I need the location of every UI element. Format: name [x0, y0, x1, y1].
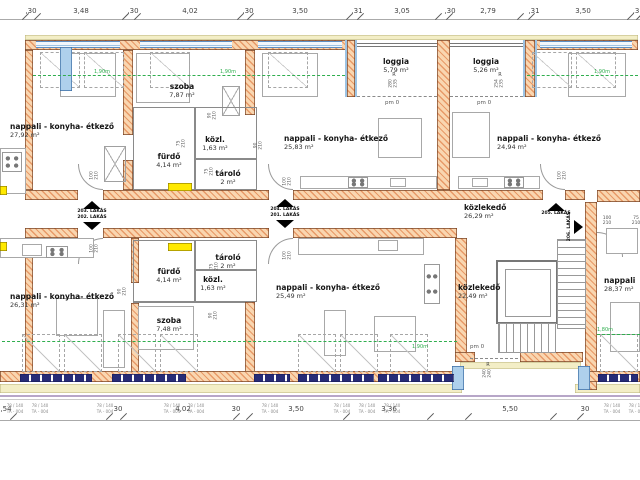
room-label: közl.1,63 m² — [191, 276, 235, 292]
apartment-door-label: 206. LAKÁS — [567, 212, 583, 241]
green-dim-label: 1,90m — [220, 69, 236, 75]
green-dim-label: 1,90m — [94, 69, 110, 75]
wall-loggia-left — [345, 40, 357, 97]
room-label: közl.1,63 m² — [193, 136, 237, 152]
dim-label: ,30 — [127, 7, 138, 15]
wall-left-upper — [25, 50, 33, 190]
door-arrow-icon — [276, 220, 294, 228]
room-label: nappali - konyha- étkező25,83 m² — [284, 135, 404, 151]
room-label: közlekedő22,49 m² — [458, 284, 522, 300]
text: 210 — [288, 248, 293, 262]
dim-tick — [246, 413, 253, 420]
dim-label: 4,02 — [182, 7, 198, 15]
window-size-numbers: 280235 — [389, 77, 400, 89]
text: 210 — [123, 284, 128, 298]
dim-label: 3,48 — [73, 7, 89, 15]
wall-divider-de — [245, 302, 255, 372]
window-bottom-3 — [254, 374, 290, 382]
room-label: nappali - konyha- étkező27,92 m² — [10, 123, 130, 139]
door-size-label: 90210 — [208, 108, 219, 122]
room-area: 27,92 m² — [10, 132, 130, 139]
aptxt: 202. LAKÁS — [70, 215, 114, 221]
floor-plan: nappali - konyha- étkező27,92 m²szoba7,8… — [0, 0, 640, 480]
dim-label: 5,50 — [502, 405, 518, 413]
window-swing-symbol — [390, 334, 428, 372]
dim-label: 2,79 — [480, 7, 496, 15]
window-top-2 — [140, 41, 232, 48]
aptxt vert: 206. LAKÁS — [567, 212, 573, 241]
aptxt: 201. LAKÁS — [263, 213, 307, 219]
text: 210 — [214, 308, 219, 322]
room-label: nappali - konyha- étkező26,31 m² — [10, 293, 130, 309]
dim-tick — [577, 413, 584, 420]
room-label: nappali - konyha- étkező24,94 m² — [497, 135, 622, 151]
dim-label: 3,50 — [292, 7, 308, 15]
wall-divider-b — [245, 50, 255, 115]
window-tag: 78 / 140TA - 004 — [97, 403, 114, 415]
text: TA - 004 — [384, 409, 401, 415]
window-tag: 78 / 140TA - 004 — [7, 403, 24, 415]
furniture-table — [606, 228, 638, 254]
sink-icon — [22, 244, 42, 256]
stove-icon — [504, 177, 524, 188]
text: TA - 004 — [262, 409, 279, 415]
sink-icon — [378, 240, 398, 251]
window-tag: 78 / 140TA - 004 — [188, 403, 205, 415]
text: TA - 004 — [604, 409, 621, 415]
room-label: szoba7,48 m² — [143, 317, 195, 333]
wall-entry-2 — [520, 352, 583, 362]
green-dim-label: 1,80m — [597, 327, 613, 333]
wall-corridor-top-4 — [565, 190, 585, 200]
dim-tick — [550, 413, 557, 420]
dim-label: 3,50 — [575, 7, 591, 15]
furniture-kitchen-counter — [298, 238, 424, 255]
window-size-label: R254235 — [494, 72, 506, 89]
dim-tick — [120, 413, 127, 420]
wall-entry-1 — [455, 352, 475, 362]
wall-corridor-top-1 — [25, 190, 78, 200]
wall-divider-bc — [437, 40, 450, 190]
stove-icon — [46, 246, 68, 258]
dim-tick — [233, 413, 240, 420]
room-label: szoba7,87 m² — [154, 83, 210, 99]
sink-icon — [472, 178, 488, 187]
door-arrow-icon — [547, 203, 565, 211]
door-size-label: 75210 — [177, 136, 188, 150]
door-size-label: 90210 — [254, 138, 265, 152]
room-area: 25,49 m² — [276, 293, 396, 300]
wall-stairhall-right — [585, 202, 597, 390]
room-area: 26,29 m² — [464, 213, 534, 220]
door-arrow-icon — [574, 220, 583, 234]
window-bottom-1 — [20, 374, 92, 382]
floor-level-label: pm 0 — [477, 100, 491, 106]
door-size-label: 100210 — [283, 174, 294, 188]
window-swing-symbol — [532, 52, 572, 88]
window-bottom-4 — [298, 374, 374, 382]
room-label: fürdő4,14 m² — [146, 153, 192, 169]
dim-label: 3,05 — [394, 7, 410, 15]
room-label: nappali - konyha- étkező25,49 m² — [276, 284, 396, 300]
facade-line — [0, 395, 640, 397]
stove-icon — [2, 152, 22, 172]
room-area: 22,49 m² — [458, 293, 522, 300]
text: TA - 004 — [334, 409, 351, 415]
room-area: 24,94 m² — [497, 144, 622, 151]
door-size-label: 100210 — [600, 216, 614, 227]
stove-icon — [348, 177, 368, 188]
dim-label: 30 — [581, 405, 590, 413]
room-area: 1,63 m² — [193, 145, 237, 152]
door-size-label: 100210 — [90, 168, 101, 182]
door-arrow-icon — [83, 222, 101, 230]
room-area: 4,14 m² — [146, 162, 192, 169]
room-area: 26,31 m² — [10, 302, 130, 309]
text: 210 — [210, 164, 215, 178]
stair-flight-horizontal — [498, 323, 556, 353]
apartment-door-label: 204. LAKÁS201. LAKÁS — [263, 199, 307, 228]
window-swing-symbol — [298, 334, 336, 372]
entry-threshold-line — [470, 358, 518, 359]
window-tag: 78 / 140TA - 004 — [384, 403, 401, 415]
window-tag: 78 / 140TA - 004 — [32, 403, 49, 415]
wall-right-block — [597, 190, 640, 202]
window-tag: 78 / 140TA - 004 — [262, 403, 279, 415]
window-size-numbers: 254235 — [495, 77, 506, 89]
dim-label: 30 — [114, 405, 123, 413]
text: 240 — [488, 367, 493, 379]
window-bottom-5 — [378, 374, 454, 382]
window-top-1 — [36, 41, 120, 48]
door-arrow-icon — [276, 199, 294, 207]
window-size-numbers: 240240 — [483, 367, 494, 379]
wall-corridor-top-2 — [103, 190, 269, 200]
threshold-left-bottom — [0, 242, 7, 251]
room-label: fürdő4,14 m² — [146, 268, 192, 284]
door-size-label: 75210 — [205, 164, 216, 178]
door-size-label: 100210 — [283, 248, 294, 262]
floor-level-label: pm 0 — [385, 100, 399, 106]
room-area: 25,83 m² — [284, 144, 404, 151]
window-tag: 78 / 140TA - 004 — [604, 403, 621, 415]
entry-facade-band — [460, 362, 581, 369]
dim-label: 3,50 — [288, 405, 304, 413]
wall-corridor-top-3 — [293, 190, 543, 200]
window-top-3 — [258, 41, 342, 48]
room-area: 4,14 m² — [146, 277, 192, 284]
text: 210 — [95, 241, 100, 255]
window-swing-symbol — [118, 334, 156, 372]
text: 210 — [259, 138, 264, 152]
wall-corridor-bottom-3 — [293, 228, 457, 238]
room-area: 1,63 m² — [191, 285, 235, 292]
window-tag: 78 / 140TA - 004 — [334, 403, 351, 415]
text: 210 — [288, 174, 293, 188]
furniture-dining-table — [452, 112, 490, 158]
text: TA - 004 — [7, 409, 24, 415]
text: 210 — [95, 168, 100, 182]
text: 210 — [182, 136, 187, 150]
wall-corridor-bottom-2 — [103, 228, 269, 238]
room-label: nappali28,37 m² — [604, 277, 640, 293]
text: 210 — [213, 108, 218, 122]
green-dim-label: 1,90m — [412, 344, 428, 350]
door-size-label: 75210 — [210, 259, 221, 273]
sink-icon — [390, 178, 406, 187]
loggia-floor-edge-1 — [357, 96, 437, 97]
door-size-label: 100210 — [90, 241, 101, 255]
text: TA - 004 — [188, 409, 205, 415]
text: 210 — [215, 259, 220, 273]
green-section-line — [33, 75, 345, 76]
window-size-label: R280235 — [388, 72, 400, 89]
window-bottom-6 — [598, 374, 638, 382]
text: 235 — [394, 77, 399, 89]
text: 235 — [500, 77, 505, 89]
door-size-label: 90210 — [118, 284, 129, 298]
loggia-floor-edge-2 — [450, 96, 523, 97]
window-top-4 — [540, 41, 632, 48]
text: 210 — [600, 221, 614, 226]
room-area: 2 m² — [206, 179, 250, 186]
room-label: közlekedő26,29 m² — [464, 204, 534, 220]
stove-icon — [424, 264, 440, 304]
dim-tick — [427, 413, 434, 420]
door-size-label: 90210 — [209, 308, 220, 322]
window-swing-symbol — [64, 334, 102, 372]
apartment-door-label: 203. LAKÁS202. LAKÁS — [70, 201, 114, 230]
bottom-facade-band-left — [0, 384, 462, 393]
stair-flight-vertical — [557, 239, 586, 329]
text: 210 — [629, 221, 640, 226]
floor-level-label: pm 0 — [470, 344, 484, 350]
window-bottom-2 — [112, 374, 186, 382]
text: TA - 004 — [97, 409, 114, 415]
text: TA - 004 — [32, 409, 49, 415]
text: 210 — [563, 168, 568, 182]
green-section-line — [2, 341, 457, 342]
room-area: 28,37 m² — [604, 286, 640, 293]
furniture-kitchen-counter — [300, 176, 437, 189]
window-swing-symbol — [22, 334, 60, 372]
door-size-label: 100210 — [558, 168, 569, 182]
text: TA - 004 — [629, 409, 640, 415]
partition-bedroom-bottom — [133, 301, 245, 303]
window-swing-symbol — [268, 52, 308, 88]
threshold-top — [168, 183, 192, 191]
window-swing-symbol — [340, 334, 378, 372]
window-bay-left — [60, 47, 72, 91]
room-area: 7,87 m² — [154, 92, 210, 99]
bottom-dimension-line — [0, 420, 640, 421]
text: TA - 004 — [164, 409, 181, 415]
facade-line-2 — [0, 399, 640, 400]
window-size-label: R240240 — [482, 362, 494, 379]
window-swing-symbol — [160, 334, 198, 372]
green-section-line — [527, 75, 638, 76]
window-tag: 78 / 140TA - 004 — [629, 403, 640, 415]
green-dim-label: 1,90m — [594, 69, 610, 75]
room-area: 7,48 m² — [143, 326, 195, 333]
text: TA - 004 — [359, 409, 376, 415]
threshold-bottom — [168, 243, 192, 251]
green-section-line — [597, 334, 640, 335]
furniture-kitchen-counter — [458, 176, 540, 189]
dim-tick — [465, 413, 472, 420]
window-tag: 78 / 140TA - 004 — [359, 403, 376, 415]
threshold-left-top — [0, 186, 7, 195]
window-tag: 78 / 140TA - 004 — [164, 403, 181, 415]
entry-corner-right — [578, 366, 590, 390]
top-dimension-line — [0, 19, 640, 20]
door-arrow-icon — [83, 201, 101, 209]
window-swing-symbol — [600, 334, 638, 372]
door-size-label: 75210 — [629, 216, 640, 227]
furniture-wardrobe — [104, 146, 126, 182]
